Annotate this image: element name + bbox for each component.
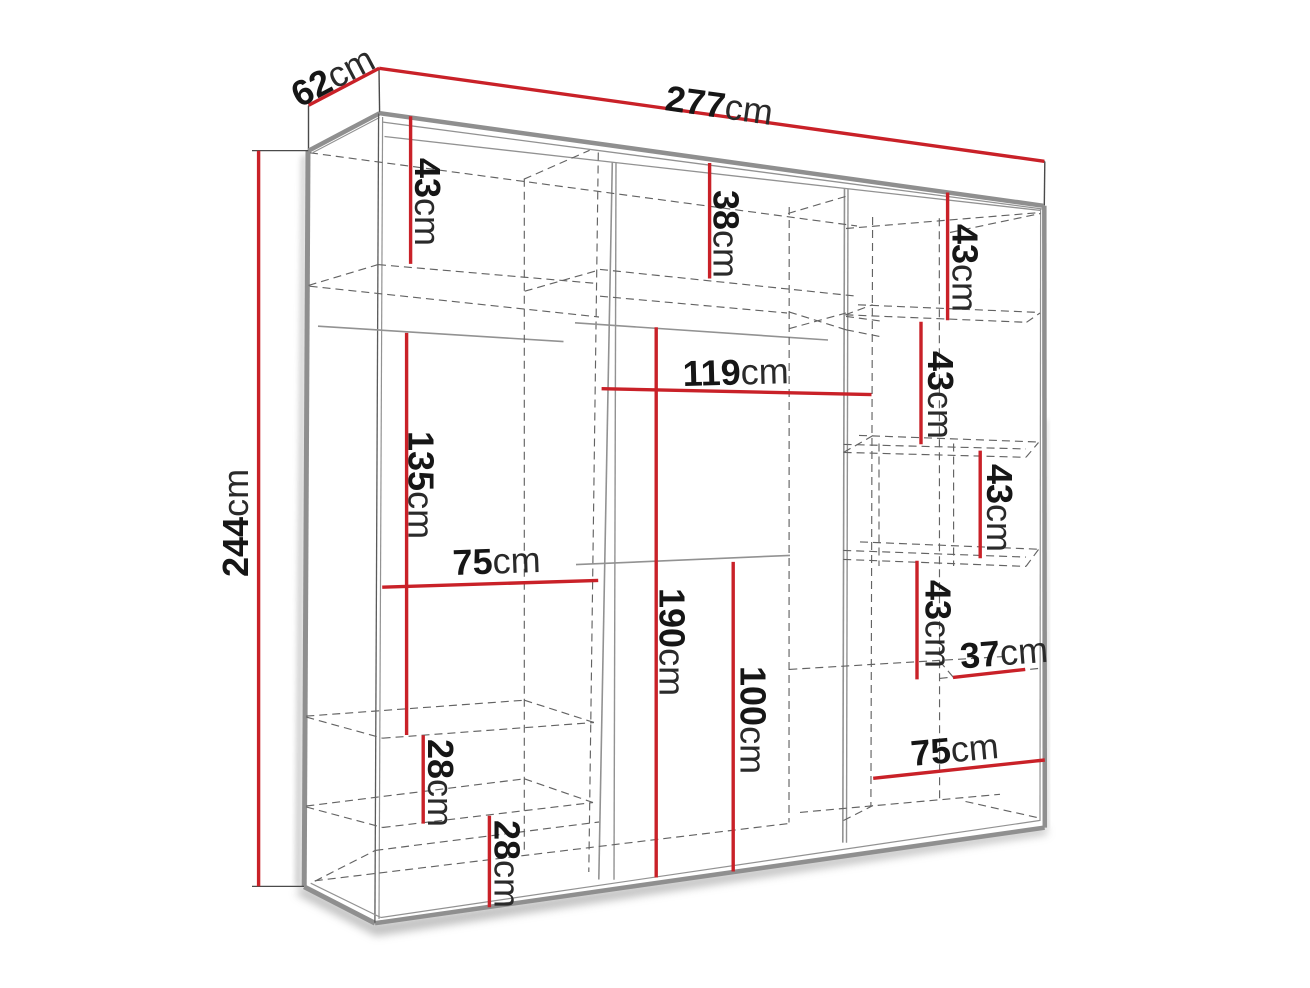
svg-text:43cm: 43cm bbox=[945, 224, 986, 312]
svg-text:28cm: 28cm bbox=[420, 739, 461, 827]
svg-text:119cm: 119cm bbox=[682, 350, 789, 394]
svg-text:37cm: 37cm bbox=[958, 629, 1049, 677]
svg-text:28cm: 28cm bbox=[487, 820, 528, 908]
svg-text:190cm: 190cm bbox=[652, 588, 693, 696]
svg-text:244cm: 244cm bbox=[215, 469, 256, 577]
svg-text:75cm: 75cm bbox=[909, 725, 1000, 774]
svg-text:38cm: 38cm bbox=[706, 190, 747, 278]
svg-text:135cm: 135cm bbox=[401, 431, 442, 539]
svg-text:43cm: 43cm bbox=[920, 351, 961, 439]
svg-text:43cm: 43cm bbox=[918, 580, 959, 668]
svg-text:43cm: 43cm bbox=[979, 464, 1020, 552]
svg-text:100cm: 100cm bbox=[733, 666, 774, 774]
svg-text:75cm: 75cm bbox=[452, 539, 541, 583]
svg-text:43cm: 43cm bbox=[407, 158, 448, 246]
